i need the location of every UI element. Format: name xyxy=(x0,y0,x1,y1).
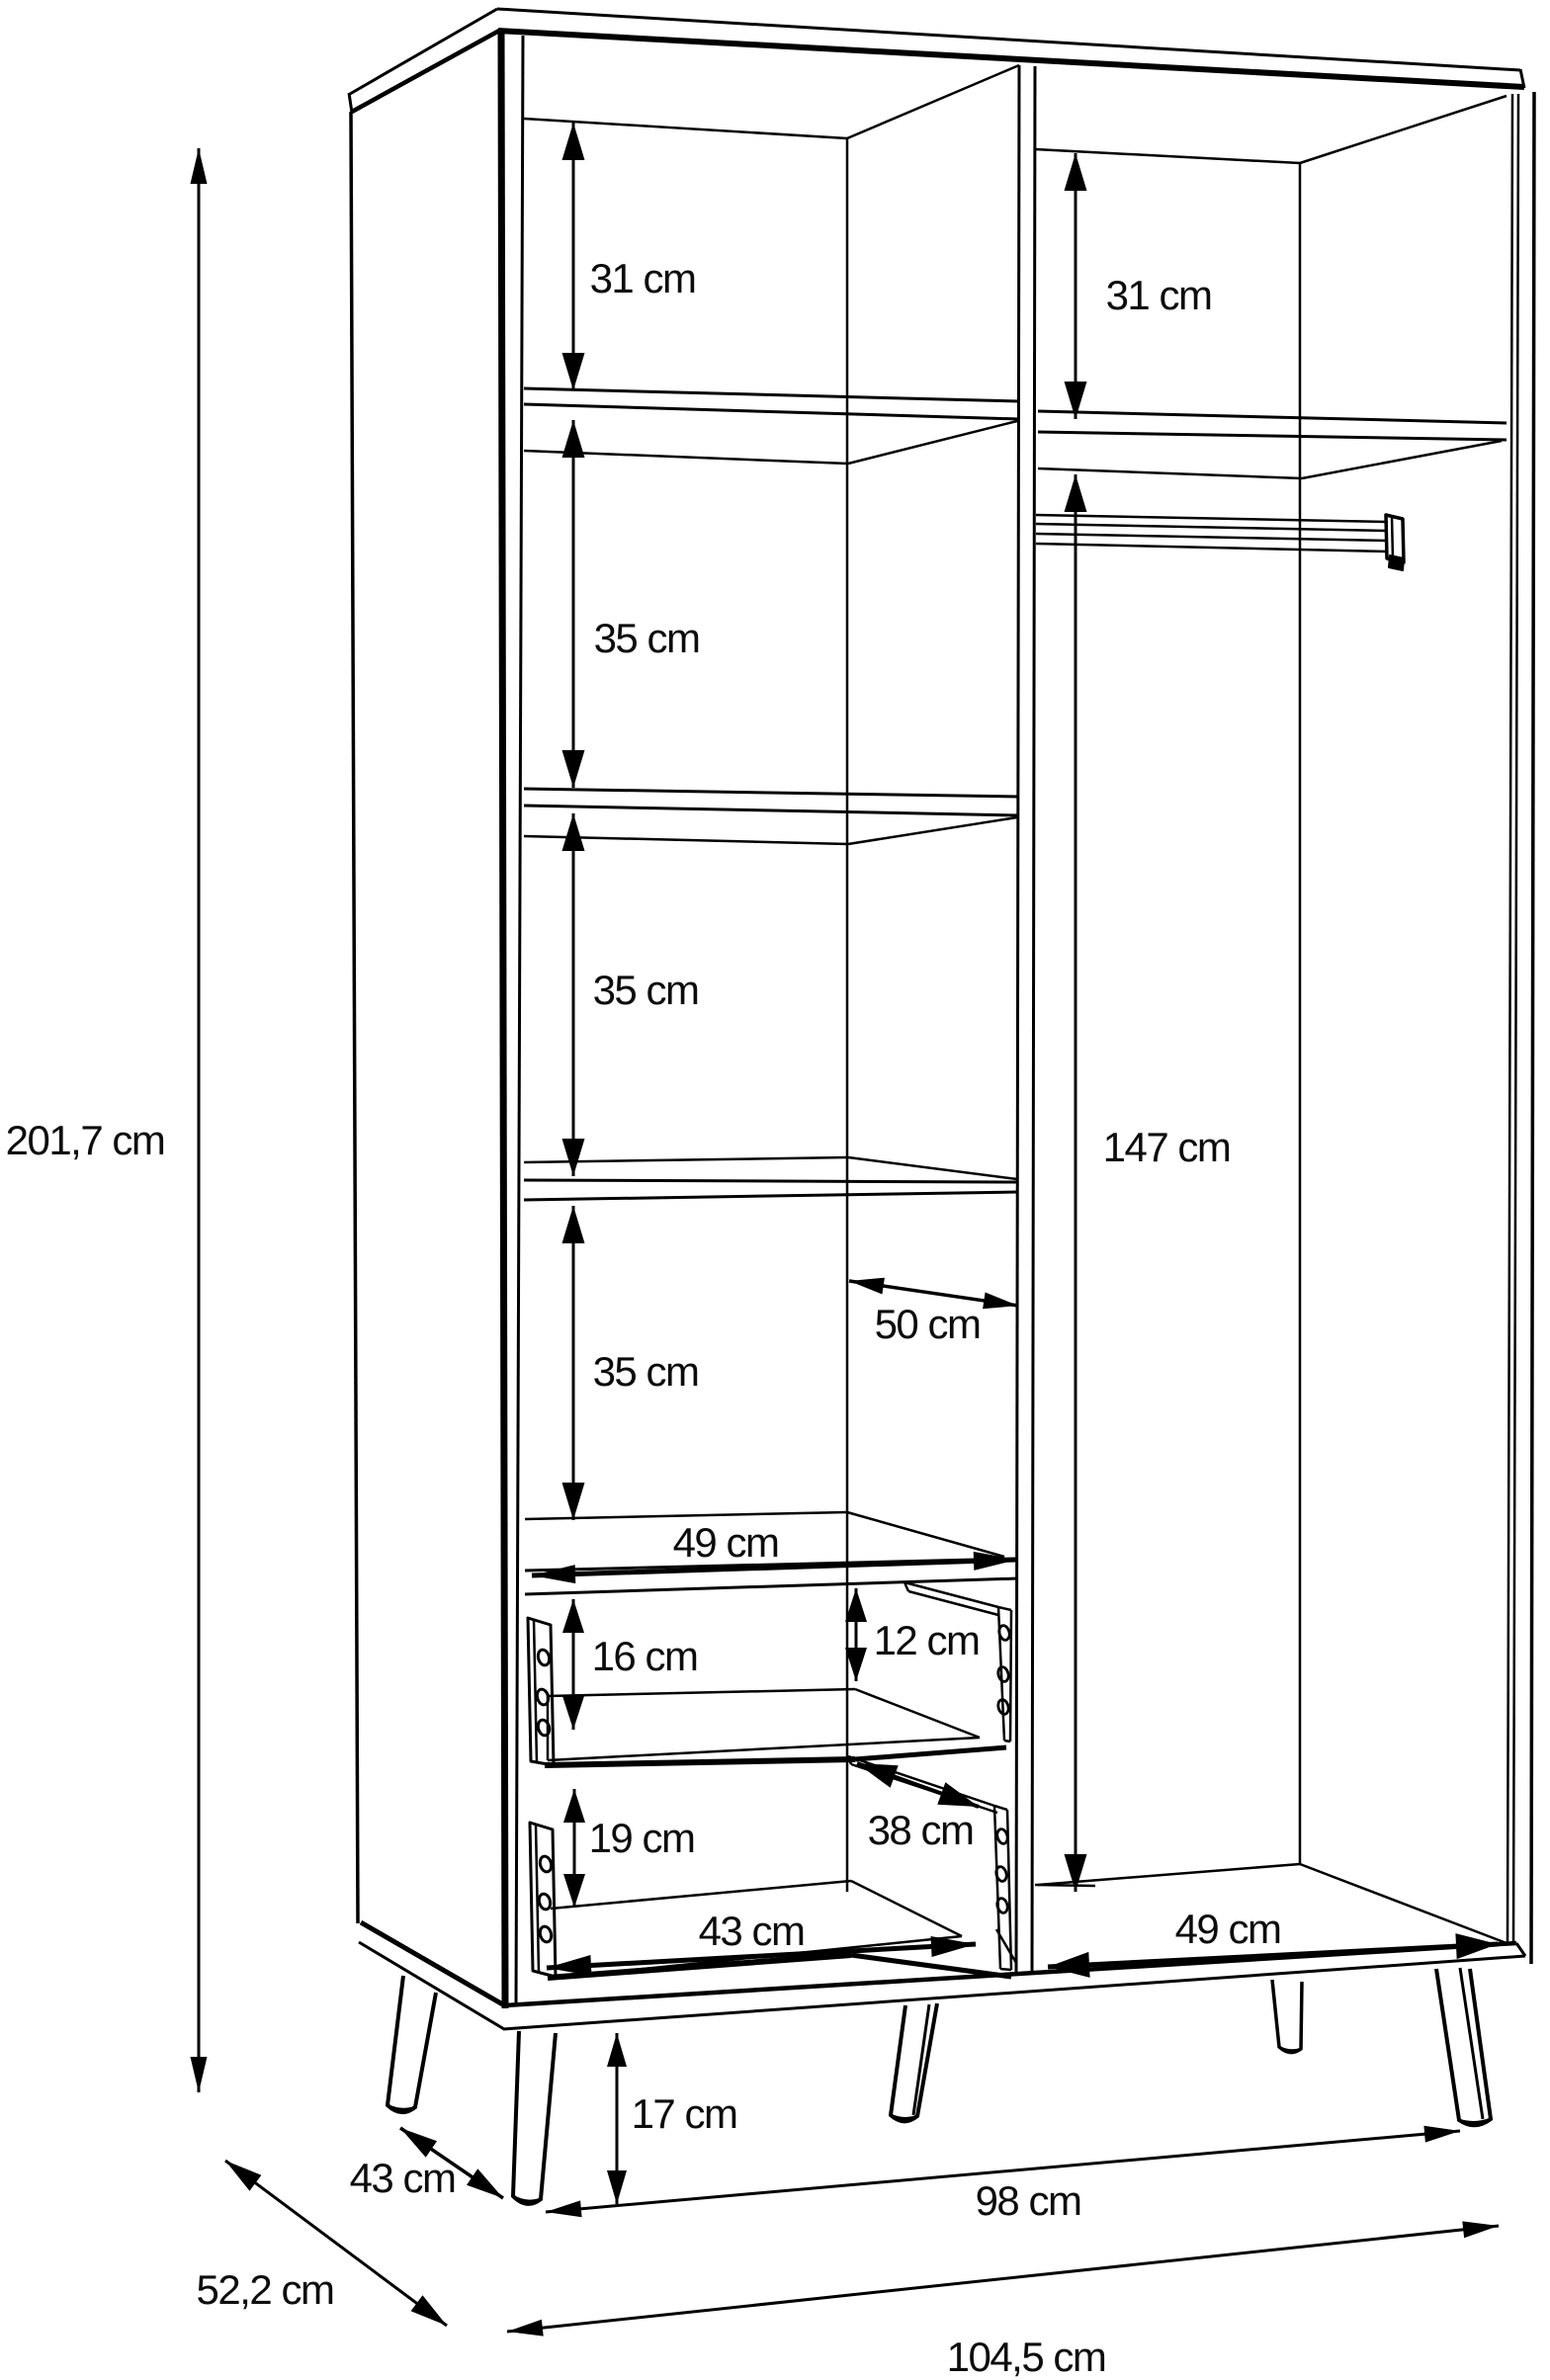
svg-text:49 cm: 49 cm xyxy=(1175,1906,1281,1952)
svg-text:43 cm: 43 cm xyxy=(350,2155,456,2201)
svg-text:38 cm: 38 cm xyxy=(868,1807,974,1853)
svg-text:35 cm: 35 cm xyxy=(593,967,699,1013)
svg-text:31 cm: 31 cm xyxy=(1106,272,1212,318)
svg-text:43 cm: 43 cm xyxy=(699,1908,805,1954)
svg-text:50 cm: 50 cm xyxy=(875,1301,981,1347)
svg-text:12 cm: 12 cm xyxy=(874,1617,980,1663)
svg-text:16 cm: 16 cm xyxy=(592,1633,698,1679)
svg-text:35 cm: 35 cm xyxy=(593,1348,699,1395)
svg-text:104,5 cm: 104,5 cm xyxy=(947,2334,1106,2380)
svg-text:147 cm: 147 cm xyxy=(1103,1124,1231,1170)
svg-text:201,7 cm: 201,7 cm xyxy=(6,1117,165,1163)
svg-text:31 cm: 31 cm xyxy=(590,255,696,301)
svg-text:98 cm: 98 cm xyxy=(976,2177,1081,2224)
svg-text:35 cm: 35 cm xyxy=(594,615,700,661)
svg-text:49 cm: 49 cm xyxy=(673,1519,779,1566)
svg-text:52,2 cm: 52,2 cm xyxy=(197,2266,334,2313)
svg-text:19 cm: 19 cm xyxy=(589,1815,695,1861)
svg-text:17 cm: 17 cm xyxy=(632,2090,737,2137)
